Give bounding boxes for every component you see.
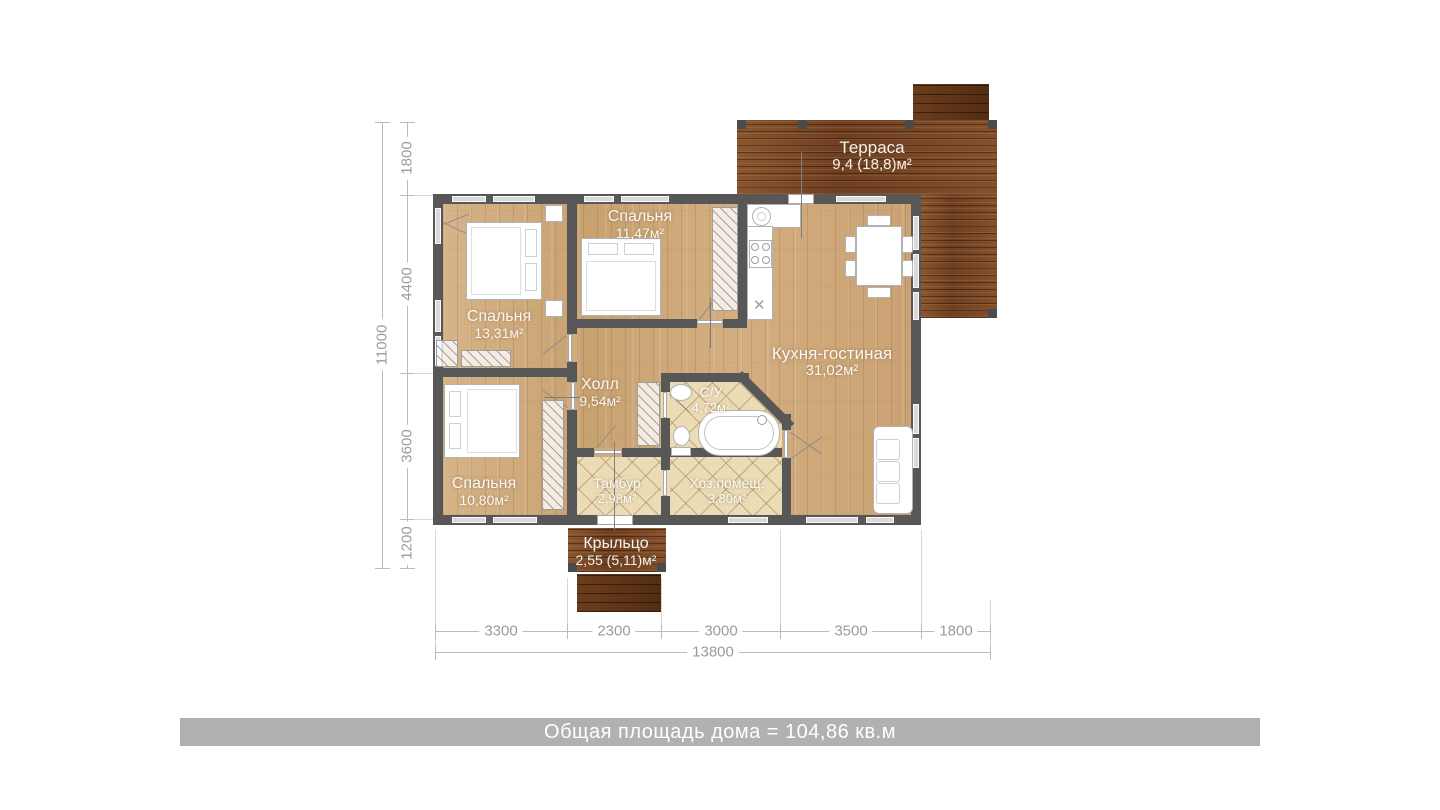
porch-steps bbox=[577, 574, 661, 612]
window bbox=[452, 196, 486, 202]
toilet-tank bbox=[671, 447, 691, 456]
window bbox=[836, 196, 886, 202]
wardrobe bbox=[436, 340, 458, 367]
chair bbox=[902, 236, 913, 253]
extension-line bbox=[780, 530, 781, 634]
burner bbox=[751, 256, 759, 264]
terrace-post bbox=[798, 120, 807, 129]
extension-line bbox=[921, 530, 922, 634]
blanket bbox=[586, 261, 656, 311]
dimension-tick bbox=[990, 645, 991, 660]
bathtub bbox=[698, 410, 780, 456]
dimension-tick bbox=[567, 624, 568, 639]
bathtub-faucet bbox=[757, 415, 767, 425]
window bbox=[913, 404, 919, 434]
dimension-tick bbox=[375, 568, 390, 569]
dim-bottom-3000: 3000 bbox=[699, 623, 742, 640]
dim-bottom-1800: 1800 bbox=[934, 623, 977, 640]
terrace-post bbox=[988, 309, 997, 318]
extension-line bbox=[414, 195, 433, 196]
dimension-tick bbox=[435, 624, 436, 639]
door-leaf bbox=[568, 334, 572, 362]
axis-line-bedroom-door bbox=[544, 397, 584, 398]
blanket bbox=[471, 227, 521, 295]
window bbox=[493, 517, 537, 523]
wardrobe bbox=[542, 400, 564, 510]
window bbox=[452, 517, 486, 523]
window bbox=[493, 196, 535, 202]
chair bbox=[867, 287, 891, 298]
window bbox=[913, 216, 919, 250]
wardrobe bbox=[461, 350, 511, 367]
burner bbox=[751, 243, 759, 251]
window bbox=[435, 300, 441, 332]
room-label-utility: Хоз.помещ. 3,80м² bbox=[689, 476, 764, 506]
extension-line bbox=[414, 373, 433, 374]
dim-bottom-2300: 2300 bbox=[592, 623, 635, 640]
counter-cross-mark: ✕ bbox=[753, 298, 766, 313]
bed-double bbox=[581, 238, 661, 316]
chair bbox=[845, 236, 856, 253]
pillow bbox=[624, 243, 654, 255]
dimension-tick bbox=[921, 624, 922, 639]
footer-bar: Общая площадь дома = 104,86 кв.м bbox=[180, 718, 1260, 746]
dim-bottom-3300: 3300 bbox=[479, 623, 522, 640]
dim-left-total-11000: 11000 bbox=[374, 320, 391, 371]
toilet-bowl bbox=[673, 426, 690, 446]
window bbox=[806, 517, 858, 523]
wardrobe bbox=[637, 382, 660, 446]
window bbox=[913, 254, 919, 288]
extension-line bbox=[414, 519, 433, 520]
pillow bbox=[525, 263, 537, 291]
dim-bottom-3500: 3500 bbox=[829, 623, 872, 640]
total-area-text: Общая площадь дома = 104,86 кв.м bbox=[544, 721, 896, 744]
sofa-cushion bbox=[876, 483, 900, 504]
porch-post bbox=[657, 563, 666, 572]
dimension-tick bbox=[661, 624, 662, 639]
dimension-tick bbox=[400, 122, 415, 123]
door-leaf bbox=[663, 470, 667, 496]
axis-line-terrace-door bbox=[801, 152, 802, 238]
dim-left-1800: 1800 bbox=[399, 136, 416, 179]
dimension-tick bbox=[375, 122, 390, 123]
dimension-tick bbox=[435, 645, 436, 660]
bed-double bbox=[444, 384, 520, 458]
burner bbox=[762, 256, 770, 264]
dimension-line-left-segments bbox=[407, 122, 408, 568]
dimension-tick bbox=[400, 568, 415, 569]
window bbox=[435, 208, 441, 244]
room-label-porch: Крыльцо 2,55 (5,11)м² bbox=[576, 535, 657, 569]
burner bbox=[762, 243, 770, 251]
terrace-post bbox=[905, 120, 914, 129]
door-leaf bbox=[571, 382, 575, 410]
nightstand bbox=[545, 205, 563, 222]
window bbox=[913, 292, 919, 320]
room-label-hall: Холл 9,54м² bbox=[579, 376, 621, 410]
room-label-terrace: Терраса 9,4 (18,8)м² bbox=[832, 138, 912, 174]
bed-double bbox=[466, 222, 542, 300]
chair bbox=[902, 260, 913, 277]
door-leaf bbox=[784, 430, 788, 458]
chair bbox=[867, 215, 891, 226]
dim-left-1200: 1200 bbox=[399, 521, 416, 564]
window bbox=[866, 517, 894, 523]
floor-plan-canvas: Терраса 9,4 (18,8)м² Крыльцо 2,55 (5,11)… bbox=[0, 0, 1440, 810]
sofa-cushion bbox=[876, 439, 900, 460]
nightstand bbox=[545, 300, 563, 317]
wall-h1 bbox=[443, 368, 567, 377]
window bbox=[913, 438, 919, 468]
bathroom-sink bbox=[670, 384, 692, 401]
wardrobe bbox=[712, 207, 738, 311]
door-leaf bbox=[594, 450, 622, 454]
room-label-bathroom: С/У 4,72м² bbox=[692, 385, 731, 415]
entrance-door bbox=[597, 515, 633, 525]
dim-left-4400: 4400 bbox=[399, 262, 416, 305]
dining-table bbox=[856, 226, 902, 286]
kitchen-sink-drain bbox=[757, 212, 766, 221]
terrace-deck-right bbox=[921, 194, 997, 318]
room-label-bedroom-13: Спальня 13,31м² bbox=[467, 308, 531, 342]
window bbox=[728, 517, 768, 523]
room-label-bedroom-11: Спальня 11,47м² bbox=[608, 208, 672, 242]
sofa-cushion bbox=[876, 461, 900, 482]
room-label-bedroom-10: Спальня 10,80м² bbox=[452, 475, 516, 509]
dimension-tick bbox=[990, 624, 991, 639]
dimension-tick bbox=[400, 519, 415, 520]
chair bbox=[845, 260, 856, 277]
dimension-tick bbox=[400, 373, 415, 374]
room-label-tambour: Тамбур 2,98м² bbox=[593, 476, 641, 506]
dim-bottom-total-13800: 13800 bbox=[687, 644, 739, 661]
sofa bbox=[873, 426, 913, 514]
pillow bbox=[525, 229, 537, 257]
terrace-post bbox=[737, 120, 746, 129]
window bbox=[584, 196, 614, 202]
blanket bbox=[467, 389, 517, 453]
pillow bbox=[449, 423, 461, 449]
dimension-tick bbox=[400, 195, 415, 196]
pillow bbox=[449, 391, 461, 417]
axis-line-bedroom11-door bbox=[710, 298, 711, 348]
window bbox=[621, 196, 669, 202]
terrace-post bbox=[988, 120, 997, 129]
wall-v2 bbox=[738, 204, 747, 328]
room-label-kitchen-living: Кухня-гостиная 31,02м² bbox=[772, 344, 892, 380]
dim-left-3600: 3600 bbox=[399, 424, 416, 467]
door-leaf bbox=[663, 392, 667, 418]
dimension-tick bbox=[780, 624, 781, 639]
pillow bbox=[588, 243, 618, 255]
terrace-steps bbox=[913, 84, 989, 122]
